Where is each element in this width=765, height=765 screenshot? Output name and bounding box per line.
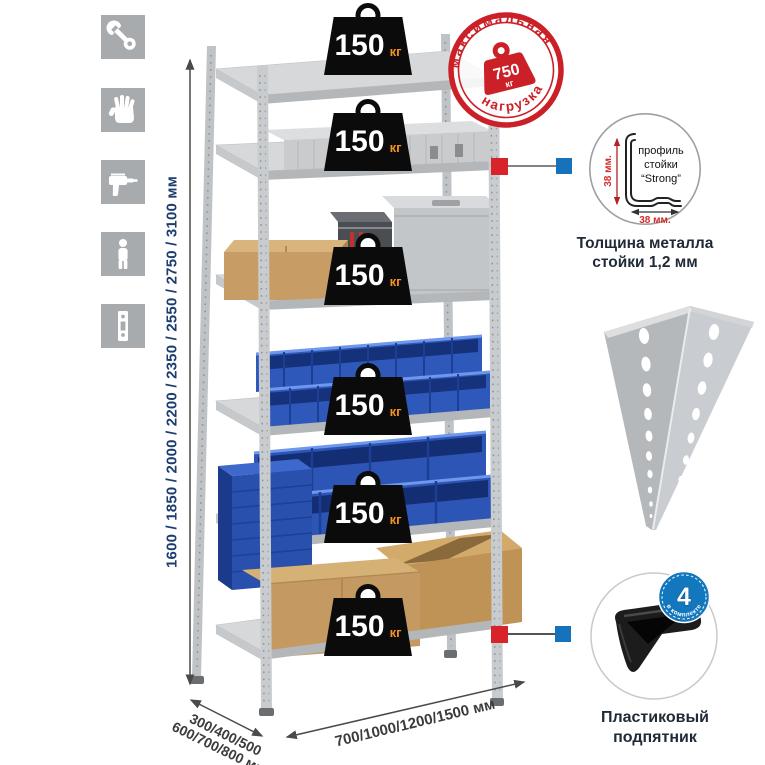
weight-unit: кг [390,625,402,640]
weight-unit: кг [390,140,402,155]
metal-thickness-line2: стойки 1,2 мм [592,254,697,271]
weight-value: 150 [335,499,385,529]
weight-unit: кг [390,404,402,419]
upright-profile-image [596,298,760,538]
profile-caption-1: профиль [638,145,684,157]
profile-horizontal-dim: 38 мм. [639,215,671,226]
red-marker-bottom [491,626,508,643]
weight-badge-shelf2: 150кг [324,99,412,171]
weight-value: 150 [335,391,385,421]
max-load-stamp: максимальная нагрузка 750 кг [446,10,566,130]
weight-unit: кг [390,512,402,527]
profile-vertical-dim: 38 мм. [603,155,614,187]
weight-value: 150 [335,261,385,291]
weight-value: 150 [335,127,385,157]
weight-badge-shelf6: 150кг [324,584,412,656]
profile-callout-connector [491,158,572,175]
profile-caption-3: “Strong” [641,173,681,185]
profile-detail-circle: 38 мм. 38 мм. профиль стойки “Strong” [588,112,702,226]
weight-badge-shelf3: 150кг [324,233,412,305]
plastic-foot-line2: подпятник [613,729,697,746]
shelving-infographic: 1600 / 1850 / 2000 / 2200 / 2350 / 2550 … [0,0,765,765]
plastic-foot-label: Пластиковый подпятник [570,708,740,748]
weight-unit: кг [390,274,402,289]
red-marker-top [491,158,508,175]
blue-marker-bottom [555,626,571,642]
weight-badge-shelf4: 150кг [324,363,412,435]
profile-caption-2: стойки [644,159,678,171]
weight-value: 150 [335,612,385,642]
metal-thickness-label: Толщина металла стойки 1,2 мм [560,234,730,273]
weight-value: 150 [335,31,385,61]
foot-callout-connector [491,626,571,643]
weight-badge-shelf1: 150кг [324,3,412,75]
kit-badge-number: 4 [677,583,691,611]
height-dimension-label: 1600 / 1850 / 2000 / 2200 / 2350 / 2550 … [164,176,181,568]
metal-thickness-line1: Толщина металла [577,235,714,252]
kit-quantity-badge: 4 в комплекте [657,570,711,624]
weight-unit: кг [390,44,402,59]
plastic-foot-line1: Пластиковый [601,709,709,726]
blue-marker-top [556,158,572,174]
weight-badge-shelf5: 150кг [324,471,412,543]
